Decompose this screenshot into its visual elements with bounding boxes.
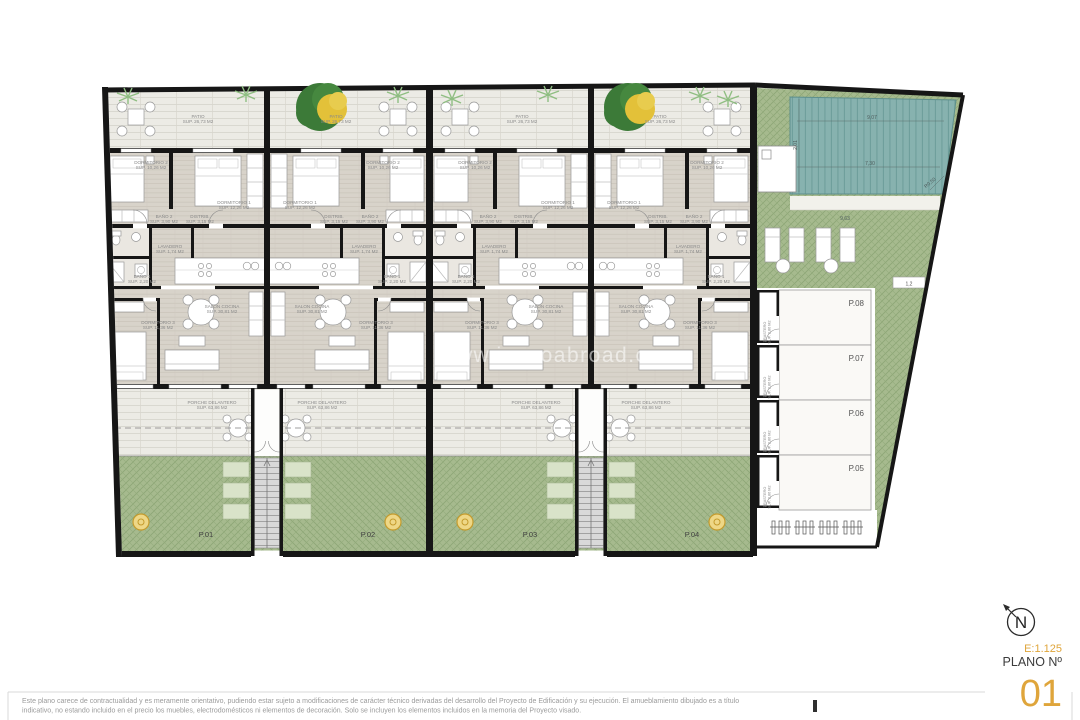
room-label-salon: SALON COCINASUP. 30,81 M2 (205, 304, 241, 314)
garden-light-marker (709, 514, 725, 530)
garden-light-marker (457, 514, 473, 530)
room-label-salon: SALON COCINASUP. 30,81 M2 (619, 304, 655, 314)
plot-label: P.03 (523, 530, 537, 539)
pool-deck (790, 196, 940, 210)
trastero-label: TRASTEROSUP. 2,86 M2 (763, 485, 771, 508)
trastero-label: TRASTEROSUP. 2,86 M2 (763, 375, 771, 398)
floor-plan: www.immoabroad.com 9,07 7,30 2,01 R0,50 … (0, 0, 1080, 720)
watermark: www.immoabroad.com (439, 344, 679, 367)
room-label-dorm1: DORMITORIO 1SUP. 12,26 M2 (283, 200, 317, 210)
room-label-salon: SALON COCINASUP. 30,81 M2 (295, 304, 331, 314)
garden-light-marker (385, 514, 401, 530)
room-label-dorm3: DORMITORIO 3SUP. 11,36 M2 (359, 320, 393, 330)
room-label-dorm3: DORMITORIO 3SUP. 11,36 M2 (141, 320, 175, 330)
pool-dim-width-mid: 7,30 (865, 161, 875, 167)
room-label-dorm1: DORMITORIO 1SUP. 12,26 M2 (541, 200, 575, 210)
room-label-dorm2: DORMITORIO 2SUP. 10,26 M2 (690, 160, 724, 170)
parking-label: P.08 (849, 299, 865, 308)
svg-text:SUP. 2,86 M2: SUP. 2,86 M2 (767, 320, 771, 343)
pool-dim-depth: 2,01 (793, 140, 799, 150)
parking-label: P.06 (849, 409, 865, 418)
side-table (824, 259, 838, 273)
room-label-dorm2: DORMITORIO 2SUP. 10,26 M2 (366, 160, 400, 170)
unit-2 (267, 84, 429, 558)
stair-1 (251, 388, 283, 556)
unit-4 (591, 84, 753, 558)
room-label-lavadero: LAVADEROSUP. 1,74 M2 (156, 244, 184, 254)
unit-3 (429, 84, 591, 558)
svg-text:SUP. 2,86 M2: SUP. 2,86 M2 (767, 430, 771, 453)
parking-label: P.05 (849, 464, 865, 473)
trastero-label: TRASTEROSUP. 2,86 M2 (763, 430, 771, 453)
edge-dim: 1,2 (906, 282, 913, 288)
svg-text:TRASTERO: TRASTERO (763, 487, 767, 508)
trastero-label: TRASTEROSUP. 2,86 M2 (763, 320, 771, 343)
room-label-dorm3: DORMITORIO 3SUP. 11,36 M2 (683, 320, 717, 330)
room-label-dorm2: DORMITORIO 2SUP. 10,26 M2 (458, 160, 492, 170)
room-label-lavadero: LAVADEROSUP. 1,74 M2 (350, 244, 378, 254)
scale-label: E:1.125 (1024, 643, 1062, 655)
svg-text:SUP. 2,86 M2: SUP. 2,86 M2 (767, 485, 771, 508)
parking-label: P.07 (849, 354, 865, 363)
north-letter: N (1015, 613, 1027, 632)
svg-text:TRASTERO: TRASTERO (763, 377, 767, 398)
svg-text:TRASTERO: TRASTERO (763, 432, 767, 453)
pool-dim-width-top: 9,07 (867, 115, 877, 121)
disclaimer-line-2: indicativo, no estando incluido en el pr… (22, 708, 581, 715)
room-label-lavadero: LAVADEROSUP. 1,74 M2 (674, 244, 702, 254)
plot-label: P.02 (361, 530, 375, 539)
plot-label: P.01 (199, 530, 213, 539)
logo-mark (813, 700, 817, 712)
room-label-dorm1: DORMITORIO 1SUP. 12,26 M2 (217, 200, 251, 210)
pool-shower-pad (758, 146, 796, 192)
plan-page: www.immoabroad.com 9,07 7,30 2,01 R0,50 … (0, 0, 1080, 720)
disclaimer-line-1: Este plano carece de contractualidad y e… (22, 698, 739, 705)
room-label-lavadero: LAVADEROSUP. 1,74 M2 (480, 244, 508, 254)
stair-2 (575, 388, 607, 556)
svg-text:SUP. 2,86 M2: SUP. 2,86 M2 (767, 375, 771, 398)
plan-number-label: PLANO Nº (1003, 655, 1063, 669)
garden-light-marker (133, 514, 149, 530)
unit-1 (105, 84, 267, 558)
room-label-dorm2: DORMITORIO 2SUP. 10,26 M2 (134, 160, 168, 170)
svg-text:TRASTERO: TRASTERO (763, 322, 767, 343)
lawn-dim: 9,63 (840, 216, 850, 222)
room-label-dorm1: DORMITORIO 1SUP. 12,26 M2 (607, 200, 641, 210)
plan-number: 01 (1020, 673, 1062, 715)
plot-label: P.04 (685, 530, 699, 539)
room-label-dorm3: DORMITORIO 3SUP. 11,36 M2 (465, 320, 499, 330)
room-label-salon: SALON COCINASUP. 30,81 M2 (529, 304, 565, 314)
side-table (776, 259, 790, 273)
